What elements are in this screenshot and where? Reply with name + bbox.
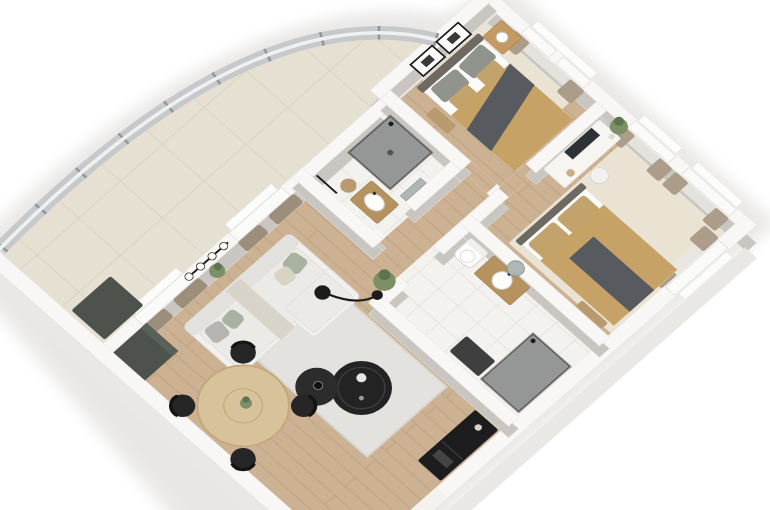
floorplan-svg [0,0,770,510]
dining-chair-sw [170,395,196,418]
floorplan-3d-render [0,0,770,510]
dining-chair-nw [230,341,256,364]
dining-chair-se [230,448,256,471]
dining-chair-ne [291,395,317,418]
